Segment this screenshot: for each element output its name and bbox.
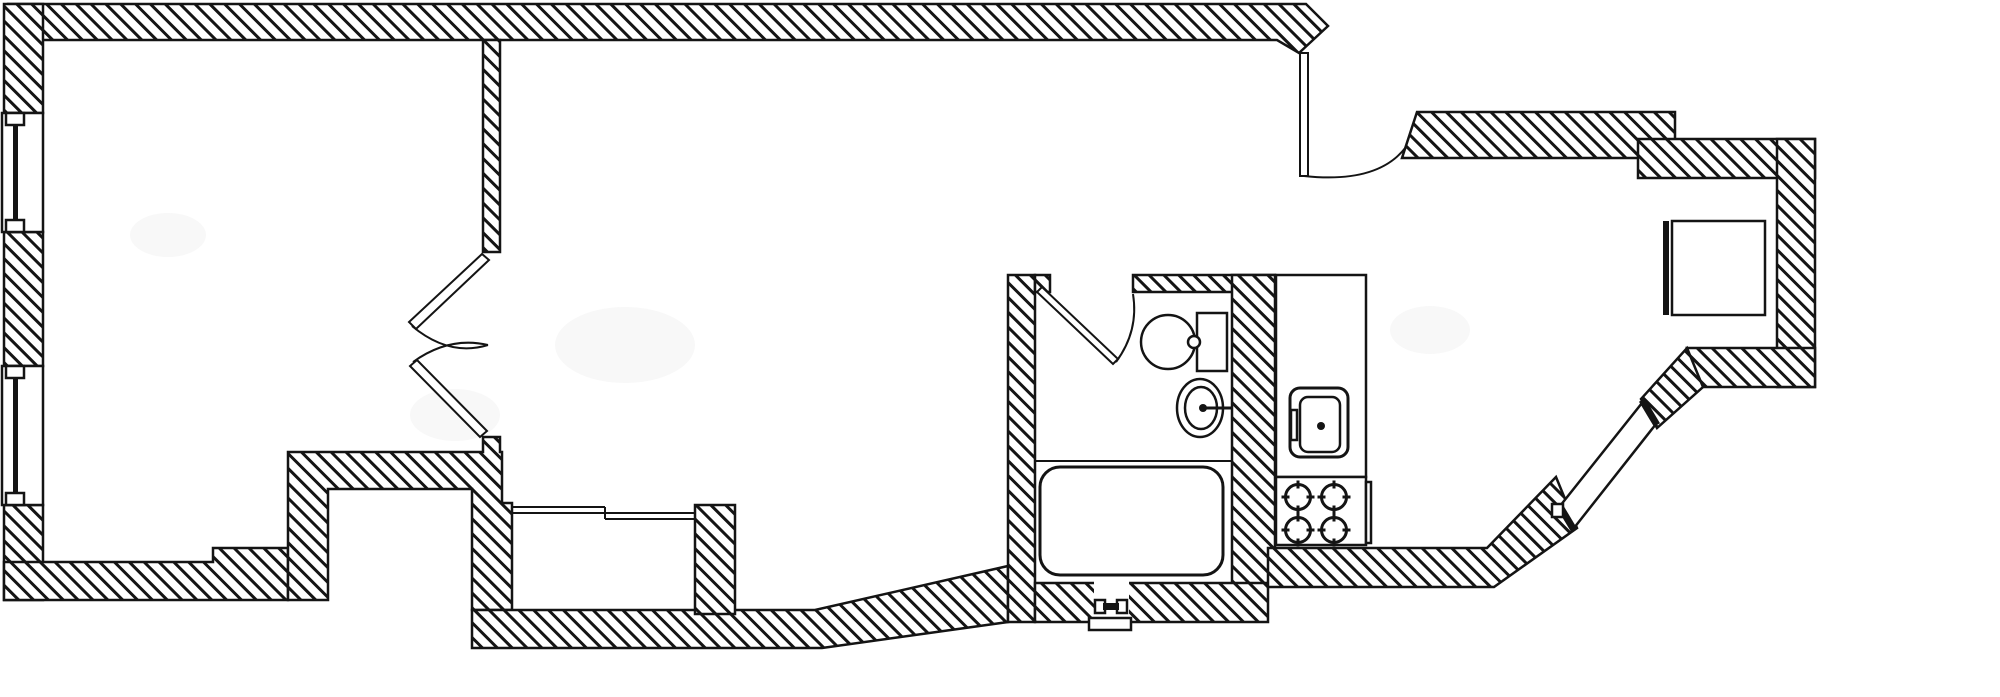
sink-lever [1291,410,1297,440]
bathtub [1040,467,1223,575]
wall-left-upper [4,4,43,113]
toilet-tank [1197,313,1227,371]
wall-bathroom-left [1008,275,1035,622]
window-left-lower [2,366,43,505]
wall-left-middle [4,232,43,366]
wall-bathroom-right [1232,275,1275,585]
window-glazing [13,125,18,220]
floorplan-page [0,0,2000,697]
wall-bathroom-bottom [1035,583,1268,622]
floorplan-drawing [0,0,2000,697]
drain-connection [1089,581,1131,630]
window-left-upper [2,113,43,232]
toilet-hinge [1188,336,1200,348]
wall-partition [483,40,500,252]
stove [1276,477,1371,547]
wall-hall-pier [695,505,735,614]
window-glazing [13,378,18,493]
door-leaf [1300,53,1308,176]
stove-handle [1366,482,1371,543]
sink-drain [1317,422,1325,430]
toilet [1141,313,1227,371]
wall-right-bottom-band [1687,348,1815,387]
appliance-box [1663,221,1765,315]
kitchen-sink [1290,388,1348,457]
wall-right-upper-band [1402,112,1675,158]
